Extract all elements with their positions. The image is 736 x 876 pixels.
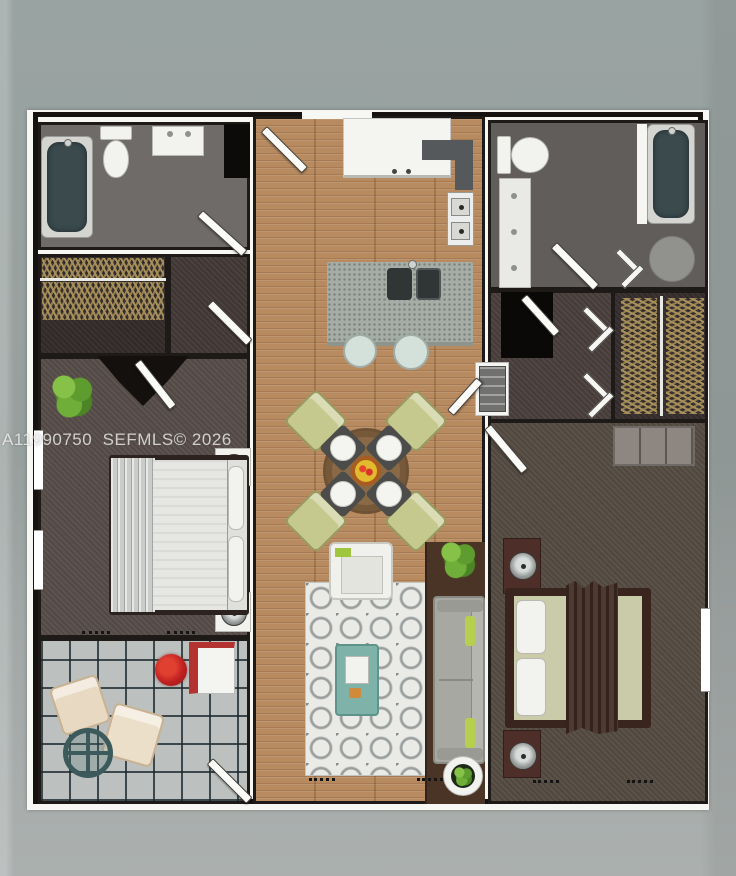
patio-table-spoke-v	[86, 731, 90, 775]
island-faucet	[408, 260, 417, 269]
bathtub-right-faucet	[668, 127, 676, 135]
round-planter	[443, 756, 483, 796]
bed-left-mattress	[153, 460, 227, 610]
island-sink-left	[387, 268, 412, 300]
sofa-arm-top	[437, 600, 483, 612]
closet-right-rod	[660, 296, 663, 416]
sofa-pillow-1	[465, 616, 475, 646]
patio-cabinet	[189, 642, 235, 694]
lamp-right-top	[509, 552, 537, 580]
closet-right-hangers-left	[621, 298, 657, 414]
vent-bedroom-right-2	[627, 780, 653, 783]
closet-left-rod	[40, 278, 166, 281]
bathtub-right-surround	[637, 124, 647, 224]
bed-right-pillow-bottom	[516, 658, 546, 716]
toilet-right-tank	[497, 136, 511, 174]
coffee-table-books	[345, 656, 369, 684]
washer	[479, 366, 506, 412]
bar-stool-1	[343, 334, 377, 368]
bed-right-pillow-top	[516, 600, 546, 654]
plate-bl	[330, 481, 356, 507]
bathtub-right	[647, 124, 695, 224]
bathtub-right-basin	[653, 130, 689, 218]
window-left-2	[34, 530, 43, 590]
linen-niche-left	[224, 124, 250, 178]
vanity-right-faucet-3	[511, 265, 517, 271]
bar-stool-2	[393, 334, 429, 370]
armchair	[329, 542, 393, 600]
closet-right-hangers-right	[666, 298, 704, 414]
window-right	[701, 608, 710, 692]
closet-left-hangers-bottom	[42, 282, 164, 320]
plate-tl	[330, 435, 356, 461]
kitchen-counter-knob-1	[392, 169, 397, 174]
sofa-seat-split	[439, 679, 473, 681]
vent-bedroom-right-1	[533, 780, 559, 783]
toilet-left-tank	[100, 126, 132, 140]
corner-counter-side	[455, 140, 473, 190]
bedroom-left-plant	[45, 368, 99, 422]
kitchen-island	[327, 262, 473, 346]
coffee-table-figure	[349, 688, 361, 698]
toilet-right-bowl	[511, 137, 549, 173]
kitchen-counter-knob-2	[406, 169, 411, 174]
stove-burner-1	[451, 198, 470, 216]
lamp-right-bottom	[509, 742, 537, 770]
living-plant	[435, 536, 481, 582]
vanity-right	[499, 178, 531, 288]
vent-living-2	[417, 778, 443, 781]
vent-living-1	[309, 778, 335, 781]
patio-round-table	[63, 728, 113, 778]
vanity-left	[152, 126, 204, 156]
island-sink-right	[416, 268, 441, 300]
bed-left-pillow-top	[228, 466, 244, 530]
toilet-left-bowl	[103, 140, 129, 178]
vent-bedroom-left-1	[82, 631, 110, 634]
vanity-right-faucet-2	[511, 229, 517, 235]
closet-left-hangers-top	[42, 258, 164, 278]
fruit-bowl	[351, 456, 381, 486]
sofa-pillow-2	[465, 718, 475, 748]
armchair-seat	[341, 556, 383, 594]
floor-plan-image: A11990750 SEFMLS© 2026	[0, 0, 736, 876]
round-planter-plant	[451, 764, 475, 788]
stove-burner-2	[451, 222, 470, 240]
round-shower-seat	[649, 236, 695, 282]
vanity-right-faucet-1	[511, 193, 517, 199]
vanity-left-faucet2	[185, 131, 191, 137]
vanity-left-faucet	[167, 131, 173, 137]
coffee-table	[335, 644, 379, 716]
bed-right-throw	[566, 581, 618, 734]
plate-br	[376, 481, 402, 507]
bed-left-pillow-bottom	[228, 536, 244, 602]
stove	[447, 192, 474, 246]
plate-tr	[376, 435, 402, 461]
bathtub-left	[41, 136, 93, 238]
bed-left-drape	[111, 458, 155, 612]
floor-plan-sheet	[27, 110, 709, 810]
bathtub-left-faucet	[64, 139, 72, 147]
vent-bedroom-left-2	[167, 631, 195, 634]
sofa	[433, 596, 485, 764]
patio-red-flower	[155, 654, 187, 686]
bed-right	[505, 588, 651, 728]
dresser	[613, 426, 695, 466]
armchair-green-item	[335, 548, 351, 557]
mls-watermark: A11990750 SEFMLS© 2026	[2, 430, 232, 450]
bed-left	[109, 455, 249, 615]
bathtub-left-basin	[47, 142, 87, 232]
